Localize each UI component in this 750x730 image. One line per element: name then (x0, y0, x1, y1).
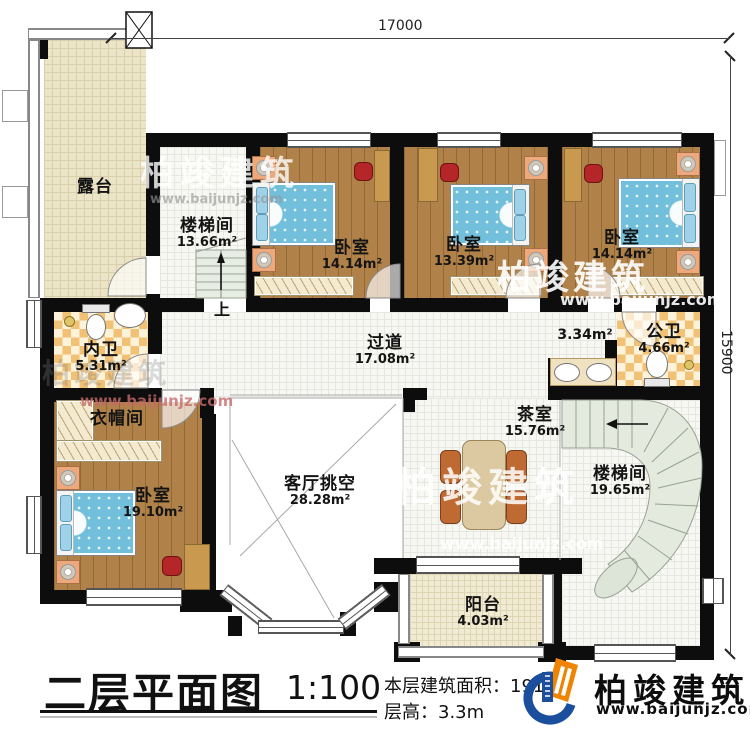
terrace-railing (28, 40, 40, 298)
window-sill (714, 140, 726, 196)
nightstand (252, 156, 276, 180)
tea-chair (440, 490, 461, 524)
pillow (60, 495, 72, 523)
nightstand (252, 248, 276, 272)
title-underline (40, 710, 377, 713)
wall (548, 140, 562, 312)
room-label-living-void: 客厅挑空28.28m² (284, 475, 356, 509)
room-label-inner-bath: 内卫5.31m² (75, 341, 126, 375)
wall (148, 312, 162, 354)
nightstand (524, 248, 548, 272)
toilet-tank (644, 378, 670, 387)
desk (374, 150, 390, 202)
desk (564, 148, 582, 202)
wall (400, 298, 508, 312)
wall (403, 388, 415, 412)
wall (540, 298, 588, 312)
desk (418, 148, 438, 202)
bed (252, 182, 336, 246)
window (86, 588, 182, 606)
window (437, 132, 501, 148)
wall (548, 386, 712, 400)
pillow (256, 214, 268, 241)
dimension-right: 15900 (718, 330, 734, 375)
room-label-stairwell1: 楼梯间13.66m² (177, 217, 237, 251)
chair (440, 163, 459, 182)
tea-chair (440, 450, 461, 484)
room-label-tearoom: 茶室15.76m² (505, 406, 565, 440)
balcony-door (416, 556, 520, 574)
company-url: www.baijunjz.com (596, 700, 750, 718)
wall (614, 298, 622, 312)
room-label-cloakroom: 衣帽间 (90, 410, 144, 429)
nightstand (676, 250, 700, 274)
wall (146, 140, 160, 256)
chair (584, 164, 603, 183)
sink (586, 363, 612, 382)
floor-drain (684, 360, 694, 370)
floorplan-canvas: 17000 15900 柏竣建筑 www.baijunjz.com 柏竣建筑 w… (0, 0, 750, 730)
room-label-wash-area: 3.34m² (557, 328, 612, 344)
sink (554, 363, 580, 382)
room-label-bedroom3: 卧室14.14m² (592, 229, 652, 263)
tea-chair (506, 450, 527, 484)
stair-up-label: 上 (214, 296, 230, 320)
bay-window (258, 620, 344, 634)
wall (228, 616, 242, 636)
wall (260, 298, 370, 312)
room-label-bedroom2: 卧室13.39m² (434, 236, 494, 270)
desk (184, 544, 210, 590)
wall (146, 298, 204, 312)
room-label-terrace: 露台 (77, 178, 113, 197)
pillow (514, 215, 526, 241)
wardrobe (254, 276, 354, 296)
toilet-tank (82, 304, 110, 313)
tea-table (462, 440, 506, 530)
balcony-railing (398, 574, 410, 644)
wardrobe (56, 440, 162, 462)
room-label-balcony: 阳台4.03m² (457, 596, 508, 630)
pillow (684, 214, 696, 243)
stairwell2-floor (562, 400, 700, 646)
wardrobe (610, 276, 704, 296)
chair (162, 556, 182, 576)
wall (520, 558, 582, 574)
dimension-top: 17000 (378, 18, 423, 34)
nightstand (676, 152, 700, 176)
dimension-line-top (110, 38, 730, 39)
wall (674, 646, 712, 660)
wardrobe (56, 400, 94, 442)
balcony-railing (542, 574, 554, 644)
floor-height-text: 层高：3.3m (384, 698, 484, 724)
blanket (270, 185, 333, 243)
room-label-bedroom1: 卧室14.14m² (322, 239, 382, 273)
room-label-public-bath: 公卫4.66m² (638, 323, 689, 357)
window (26, 496, 42, 554)
room-label-bedroom4: 卧室19.10m² (123, 487, 183, 521)
window (26, 300, 42, 348)
wall (390, 140, 404, 312)
pillow (60, 524, 72, 552)
wall (40, 590, 88, 604)
window (594, 644, 676, 662)
nightstand (524, 156, 548, 180)
sink (114, 303, 146, 328)
terrace-floor (44, 40, 146, 298)
pillow (514, 189, 526, 215)
balcony-railing (398, 646, 544, 658)
room-label-corridor: 过道17.08m² (355, 334, 415, 368)
nightstand (56, 466, 80, 490)
floor-area-text: 本层建筑面积：191.5 (384, 672, 562, 698)
wall (656, 298, 712, 312)
pillow (684, 183, 696, 212)
pillow (256, 187, 268, 214)
plan-scale: 1:100 (286, 668, 381, 707)
wall (374, 558, 416, 574)
toilet (86, 314, 106, 340)
window (287, 132, 371, 148)
wardrobe (450, 276, 542, 296)
chair (354, 162, 373, 181)
pilaster (2, 186, 28, 218)
pilaster (2, 90, 28, 122)
title-underline-shadow (40, 716, 377, 718)
floor-drain (64, 316, 75, 327)
wall (40, 298, 54, 604)
room-label-stairwell2: 楼梯间19.65m² (590, 465, 650, 499)
tea-chair (506, 490, 527, 524)
window (592, 132, 682, 148)
nightstand (56, 560, 80, 584)
window (702, 578, 724, 604)
